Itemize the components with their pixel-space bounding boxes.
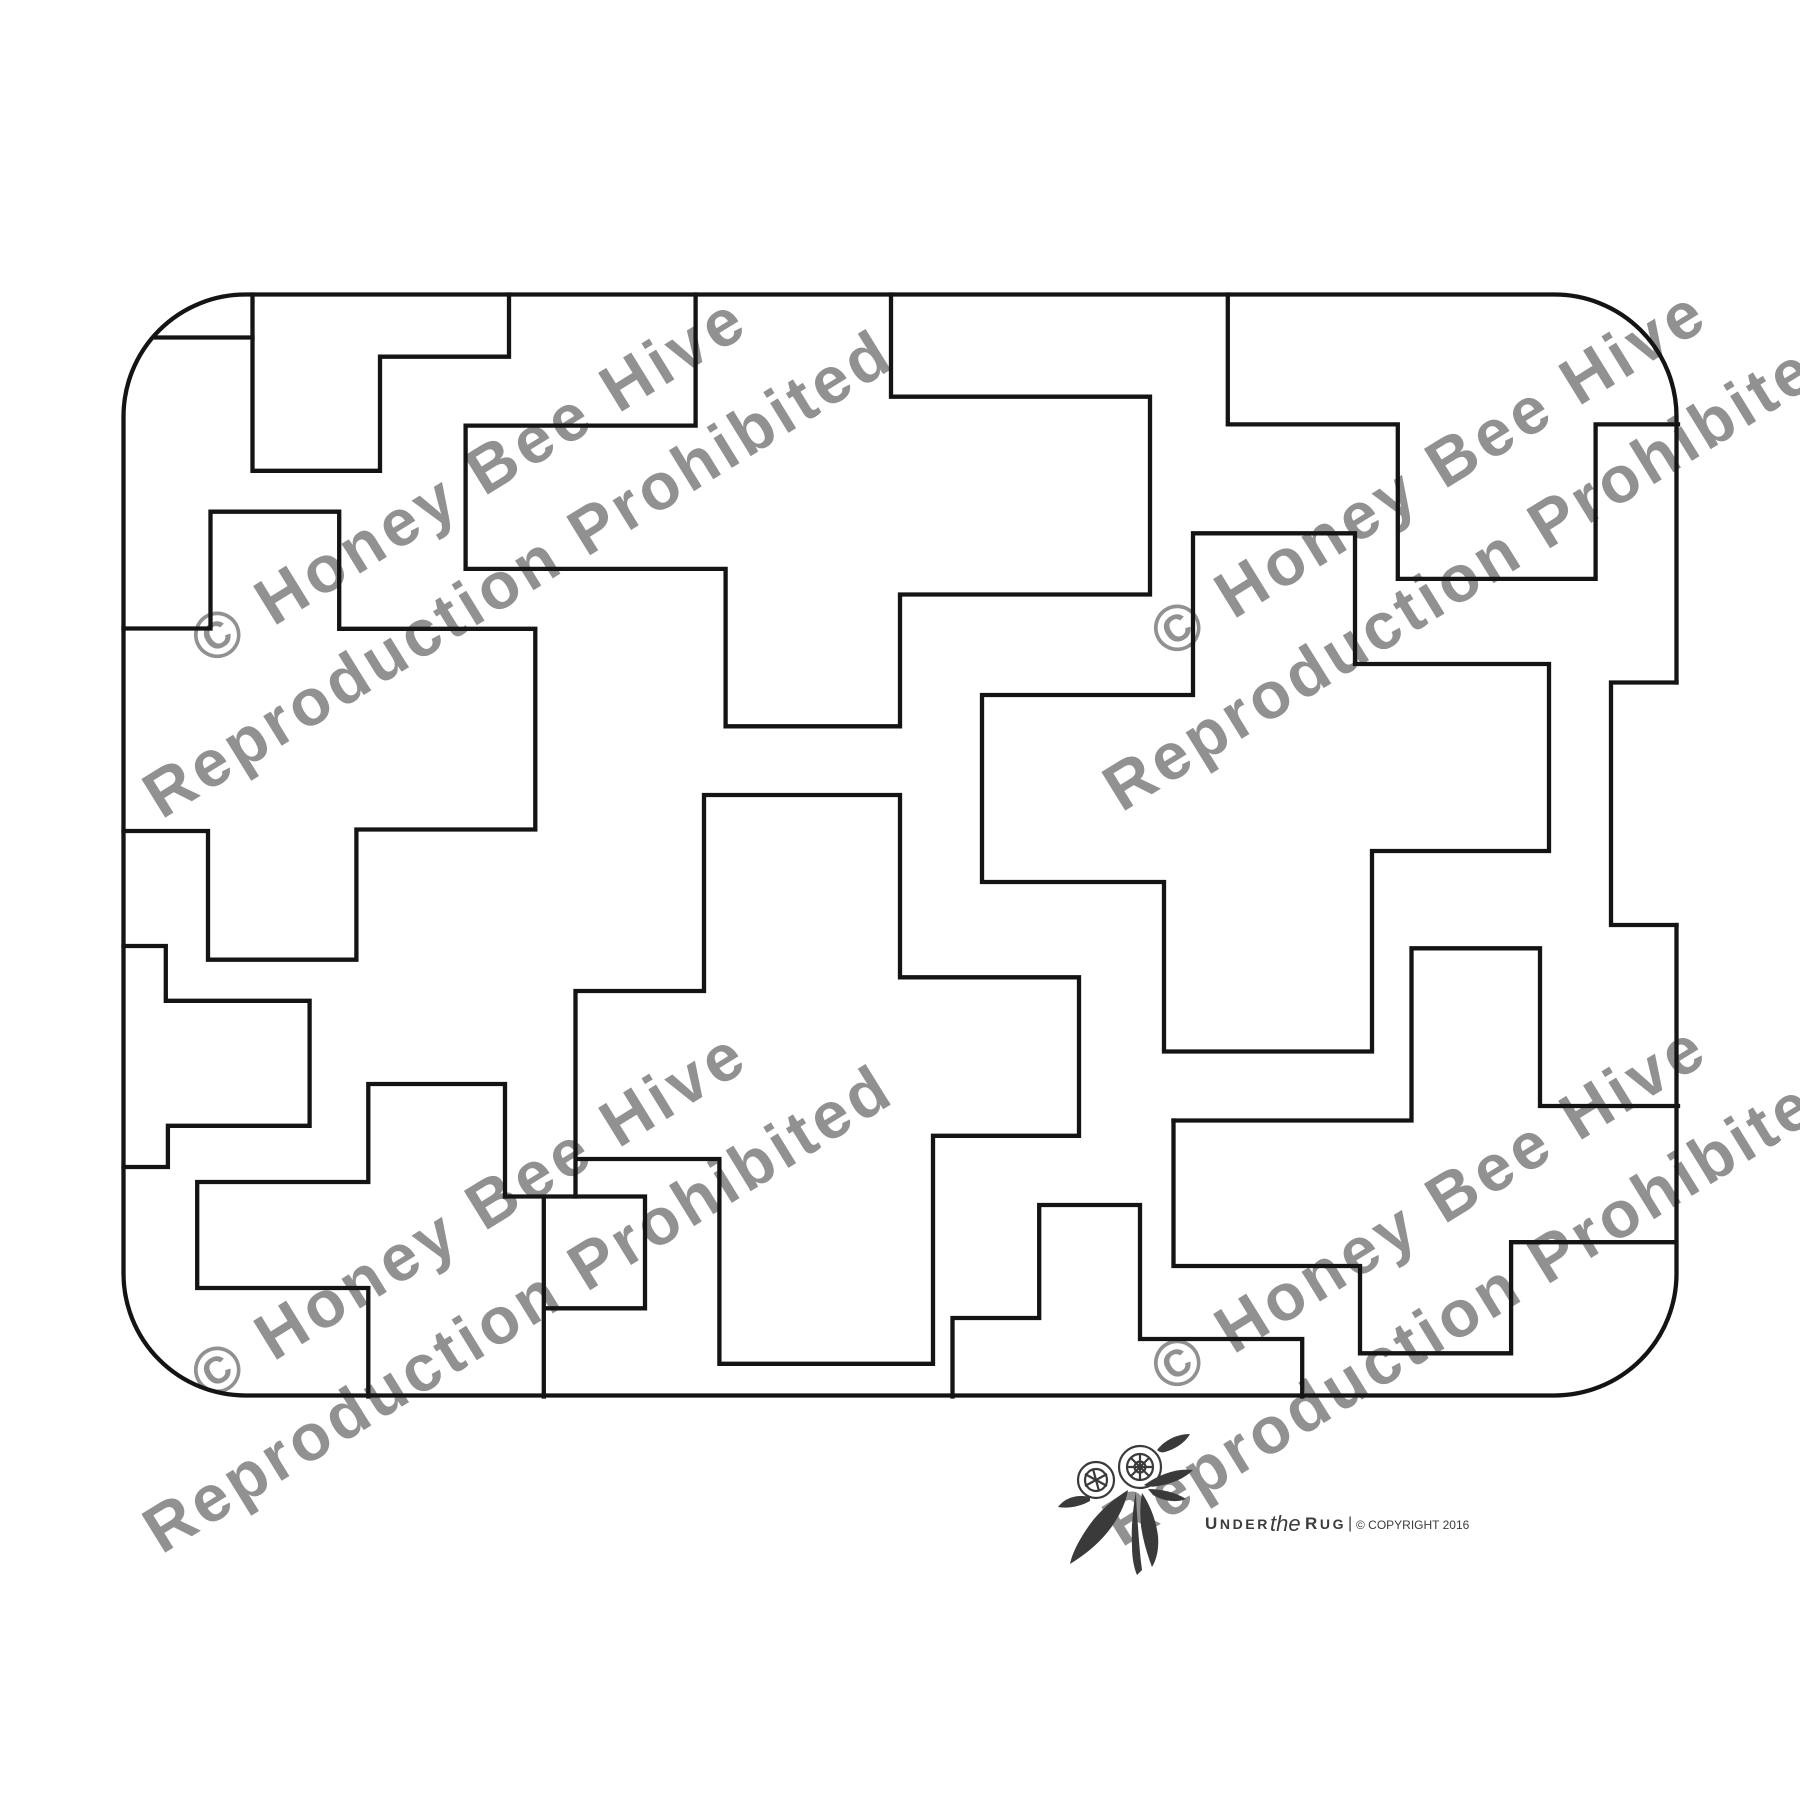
svg-text:|: | bbox=[1348, 1515, 1352, 1532]
svg-text:© COPYRIGHT 2016: © COPYRIGHT 2016 bbox=[1356, 1518, 1470, 1532]
svg-text:RUG: RUG bbox=[1305, 1514, 1346, 1533]
svg-text:the: the bbox=[1270, 1511, 1301, 1536]
svg-text:UNDER: UNDER bbox=[1205, 1514, 1270, 1533]
